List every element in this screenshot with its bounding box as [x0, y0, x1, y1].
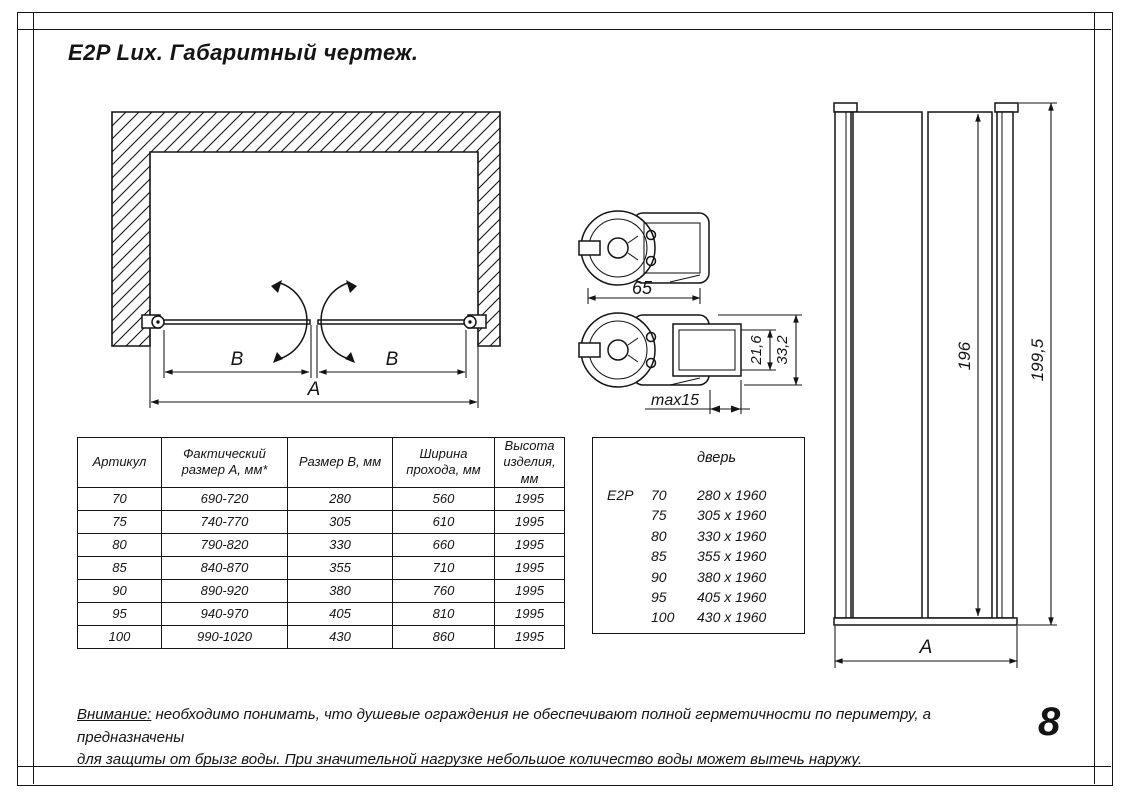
warning-line-1: Внимание: необходимо понимать, что душев…: [77, 704, 1037, 749]
page-number: 8: [1038, 700, 1060, 745]
left-wall-cap: [834, 103, 857, 112]
cell: 940-970: [162, 602, 288, 625]
cell: 100: [78, 625, 162, 648]
warning-label: Внимание:: [77, 706, 151, 723]
front-elevation-drawing: 196 199,5 A: [825, 98, 1075, 690]
dim-label-196: 196: [955, 341, 974, 370]
cell: 1995: [495, 602, 565, 625]
bottom-sill: [834, 618, 1017, 625]
cell: 430: [288, 625, 393, 648]
table-row: 80790-8203306601995: [78, 533, 565, 556]
list-item: 95405 x 1960: [607, 587, 800, 607]
table-row: 85840-8703557101995: [78, 556, 565, 579]
cell: 380: [288, 579, 393, 602]
dim-label-21-6: 21,6: [748, 335, 765, 366]
table-row: 95940-9704058101995: [78, 602, 565, 625]
cell: 840-870: [162, 556, 288, 579]
left-door-glass: [853, 112, 922, 618]
cell: 610: [393, 510, 495, 533]
table-row: 90890-9203807601995: [78, 579, 565, 602]
sheet-frame-left-line: [33, 12, 34, 784]
cell: 1995: [495, 533, 565, 556]
cell: 660: [393, 533, 495, 556]
cell: 690-720: [162, 487, 288, 510]
table-row: 75740-7703056101995: [78, 510, 565, 533]
series-label: E2P: [607, 485, 651, 505]
col-header-product-height: Высота изделия, мм: [495, 438, 565, 488]
left-hinge-icon: [142, 315, 164, 328]
table-row: 70690-7202805601995: [78, 487, 565, 510]
profile-sections-drawing: 65 21,6 33,2 max15: [578, 198, 813, 426]
cell: 790-820: [162, 533, 288, 556]
col-header-article: Артикул: [78, 438, 162, 488]
cell: 890-920: [162, 579, 288, 602]
table-row: 100990-10204308601995: [78, 625, 565, 648]
cell: 95: [78, 602, 162, 625]
spec-table-header-row: Артикул Фактический размер А, мм* Размер…: [78, 438, 565, 488]
list-item: 75305 x 1960: [607, 505, 800, 525]
cell: 1995: [495, 625, 565, 648]
wall-profile-section: [579, 211, 709, 285]
col-header-passage-width: Ширина прохода, мм: [393, 438, 495, 488]
cell: 405: [288, 602, 393, 625]
col-header-size-a: Фактический размер А, мм*: [162, 438, 288, 488]
door-size-list: E2P70280 x 1960 75305 x 1960 80330 x 196…: [607, 485, 800, 628]
cell: 1995: [495, 487, 565, 510]
cell: 1995: [495, 510, 565, 533]
dim-label-b-left: B: [231, 349, 244, 370]
page-title: E2P Lux. Габаритный чертеж.: [68, 40, 418, 66]
dim-arrow: [731, 406, 741, 413]
door-box-header: дверь: [697, 450, 736, 466]
dim-arrow: [710, 406, 720, 413]
cell: 355: [288, 556, 393, 579]
dim-label-33-2: 33,2: [774, 335, 791, 365]
list-item: E2P70280 x 1960: [607, 485, 800, 505]
right-wall-profile: [997, 112, 1013, 618]
cell: 1995: [495, 579, 565, 602]
door-sizes-box: дверь E2P70280 x 1960 75305 x 1960 80330…: [592, 437, 805, 634]
cell: 810: [393, 602, 495, 625]
plan-view-drawing: B B A: [106, 106, 506, 418]
warning-note: Внимание: необходимо понимать, что душев…: [77, 704, 1037, 772]
sheet-frame-right-line: [1094, 12, 1095, 784]
cell: 280: [288, 487, 393, 510]
warning-line-2: для защиты от брызг воды. При значительн…: [77, 749, 1037, 772]
cell: 85: [78, 556, 162, 579]
cell: 760: [393, 579, 495, 602]
cell: 70: [78, 487, 162, 510]
sheet-frame-top-line: [17, 29, 1111, 30]
spec-table: Артикул Фактический размер А, мм* Размер…: [77, 437, 565, 649]
dim-label-65: 65: [632, 278, 653, 298]
cell: 710: [393, 556, 495, 579]
list-item: 80330 x 1960: [607, 526, 800, 546]
cell: 1995: [495, 556, 565, 579]
cell: 990-1020: [162, 625, 288, 648]
right-hinge-icon: [464, 315, 486, 328]
cell: 90: [78, 579, 162, 602]
right-wall-cap: [995, 103, 1018, 112]
cell: 330: [288, 533, 393, 556]
cell: 740-770: [162, 510, 288, 533]
cell: 860: [393, 625, 495, 648]
cell: 75: [78, 510, 162, 533]
dim-label-199-5: 199,5: [1028, 338, 1047, 381]
left-wall-profile: [835, 112, 851, 618]
left-door-panel: [163, 320, 310, 324]
cell: 560: [393, 487, 495, 510]
cell: 305: [288, 510, 393, 533]
dim-label-a-elevation: A: [919, 637, 933, 658]
cell: 80: [78, 533, 162, 556]
col-header-size-b: Размер В, мм: [288, 438, 393, 488]
list-item: 90380 x 1960: [607, 567, 800, 587]
dim-label-b-right: B: [386, 349, 399, 370]
dim-label-max15: max15: [651, 392, 699, 409]
adjustable-profile-section: [579, 313, 741, 387]
dim-label-a: A: [307, 379, 321, 400]
right-door-panel: [318, 320, 466, 324]
list-item: 100430 x 1960: [607, 607, 800, 627]
list-item: 85355 x 1960: [607, 546, 800, 566]
